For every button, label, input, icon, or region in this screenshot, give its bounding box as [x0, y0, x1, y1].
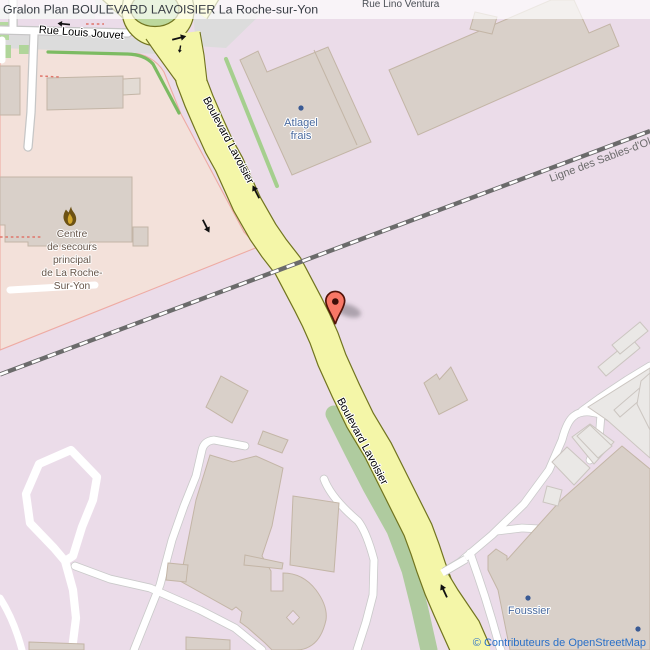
svg-text:de secours: de secours: [47, 242, 97, 253]
svg-text:Foussier: Foussier: [508, 605, 551, 617]
svg-text:Sur-Yon: Sur-Yon: [54, 281, 90, 292]
svg-text:Centre: Centre: [57, 229, 88, 240]
svg-text:Rue Lino Ventura: Rue Lino Ventura: [362, 0, 440, 10]
svg-text:Gralon Plan BOULEVARD LAVOISIE: Gralon Plan BOULEVARD LAVOISIER La Roche…: [3, 3, 318, 17]
svg-text:principal: principal: [53, 255, 91, 266]
svg-text:frais: frais: [291, 130, 312, 142]
svg-text:© Contributeurs de OpenStreetM: © Contributeurs de OpenStreetMap: [473, 637, 646, 649]
svg-text:Atlagel: Atlagel: [284, 117, 318, 129]
svg-text:de La Roche-: de La Roche-: [41, 268, 102, 279]
